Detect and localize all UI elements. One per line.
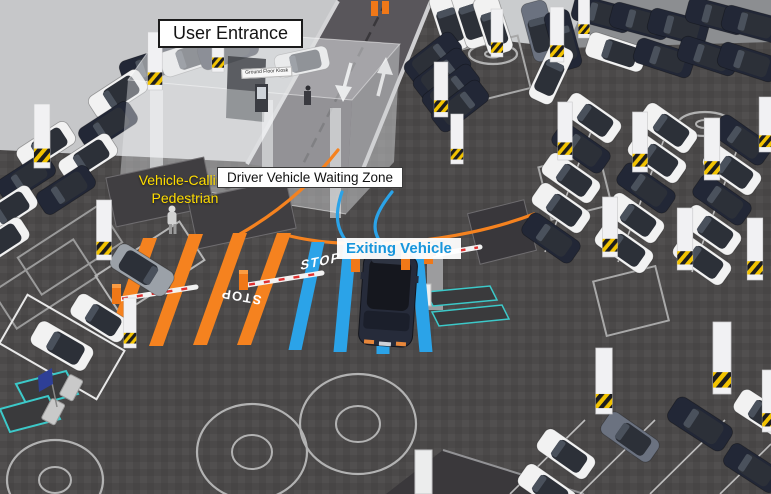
car-taillight <box>364 339 374 344</box>
pillar <box>451 114 464 164</box>
hazard-stripe-band <box>124 333 137 344</box>
hazard-stripe-band <box>747 261 763 274</box>
hazard-stripe-band <box>759 135 771 147</box>
hazard-stripe-band <box>762 413 771 426</box>
pillar <box>713 322 731 394</box>
user-entrance-label: User Entrance <box>158 19 303 48</box>
car-license-plate <box>379 341 391 346</box>
pillar <box>633 112 648 172</box>
pillar <box>578 0 589 38</box>
vehicle-calling-line2: Pedestrian <box>110 190 260 208</box>
pillar <box>34 104 50 168</box>
entrance-bollard <box>371 1 378 16</box>
hazard-stripe-band <box>212 57 224 67</box>
pillar <box>704 118 720 180</box>
pillar <box>434 62 448 117</box>
person-inside <box>304 91 311 105</box>
hazard-stripe-band <box>596 394 613 408</box>
hazard-stripe-band <box>677 251 693 264</box>
hazard-stripe-band <box>34 149 50 163</box>
pillar <box>558 102 573 160</box>
person-inside <box>306 86 311 91</box>
hazard-stripe-band <box>558 142 573 154</box>
pillar <box>747 218 763 280</box>
pillar <box>603 197 618 257</box>
pillar <box>759 97 771 152</box>
car-mirror <box>360 272 365 279</box>
car-mirror <box>413 276 418 283</box>
corner-pillar <box>415 450 432 494</box>
exiting-car <box>356 252 420 348</box>
hazard-stripe-band <box>578 24 589 34</box>
gate-post-cap <box>112 284 121 288</box>
exiting-vehicle-label: Exiting Vehicle <box>337 238 461 259</box>
kiosk-screen <box>257 87 266 99</box>
entrance-bollard <box>382 1 389 14</box>
hazard-stripe-band <box>713 372 731 387</box>
hazard-stripe-band <box>491 42 503 52</box>
gate-post <box>112 284 121 304</box>
pillar <box>550 7 564 62</box>
hazard-stripe-band <box>451 149 464 160</box>
hazard-stripe-band <box>603 239 618 252</box>
hazard-stripe-band <box>148 72 163 84</box>
gate-post <box>239 270 248 290</box>
valet-parking-simulation: STOP STOP STOP User Entrance Ground Floo… <box>0 0 771 494</box>
car-taillight <box>396 342 406 347</box>
hazard-stripe-band <box>633 154 648 167</box>
pillar <box>124 298 137 348</box>
pillar <box>762 370 771 432</box>
hazard-stripe-band <box>434 100 448 112</box>
hazard-stripe-band <box>97 242 112 255</box>
pillar <box>491 9 503 57</box>
pillar <box>596 348 613 414</box>
hazard-stripe-band <box>704 161 720 174</box>
pillar <box>97 200 112 260</box>
pillar <box>677 208 693 270</box>
driver-vehicle-waiting-zone-label: Driver Vehicle Waiting Zone <box>217 167 403 188</box>
gate-post-cap <box>239 270 248 274</box>
hazard-stripe-band <box>550 45 564 57</box>
